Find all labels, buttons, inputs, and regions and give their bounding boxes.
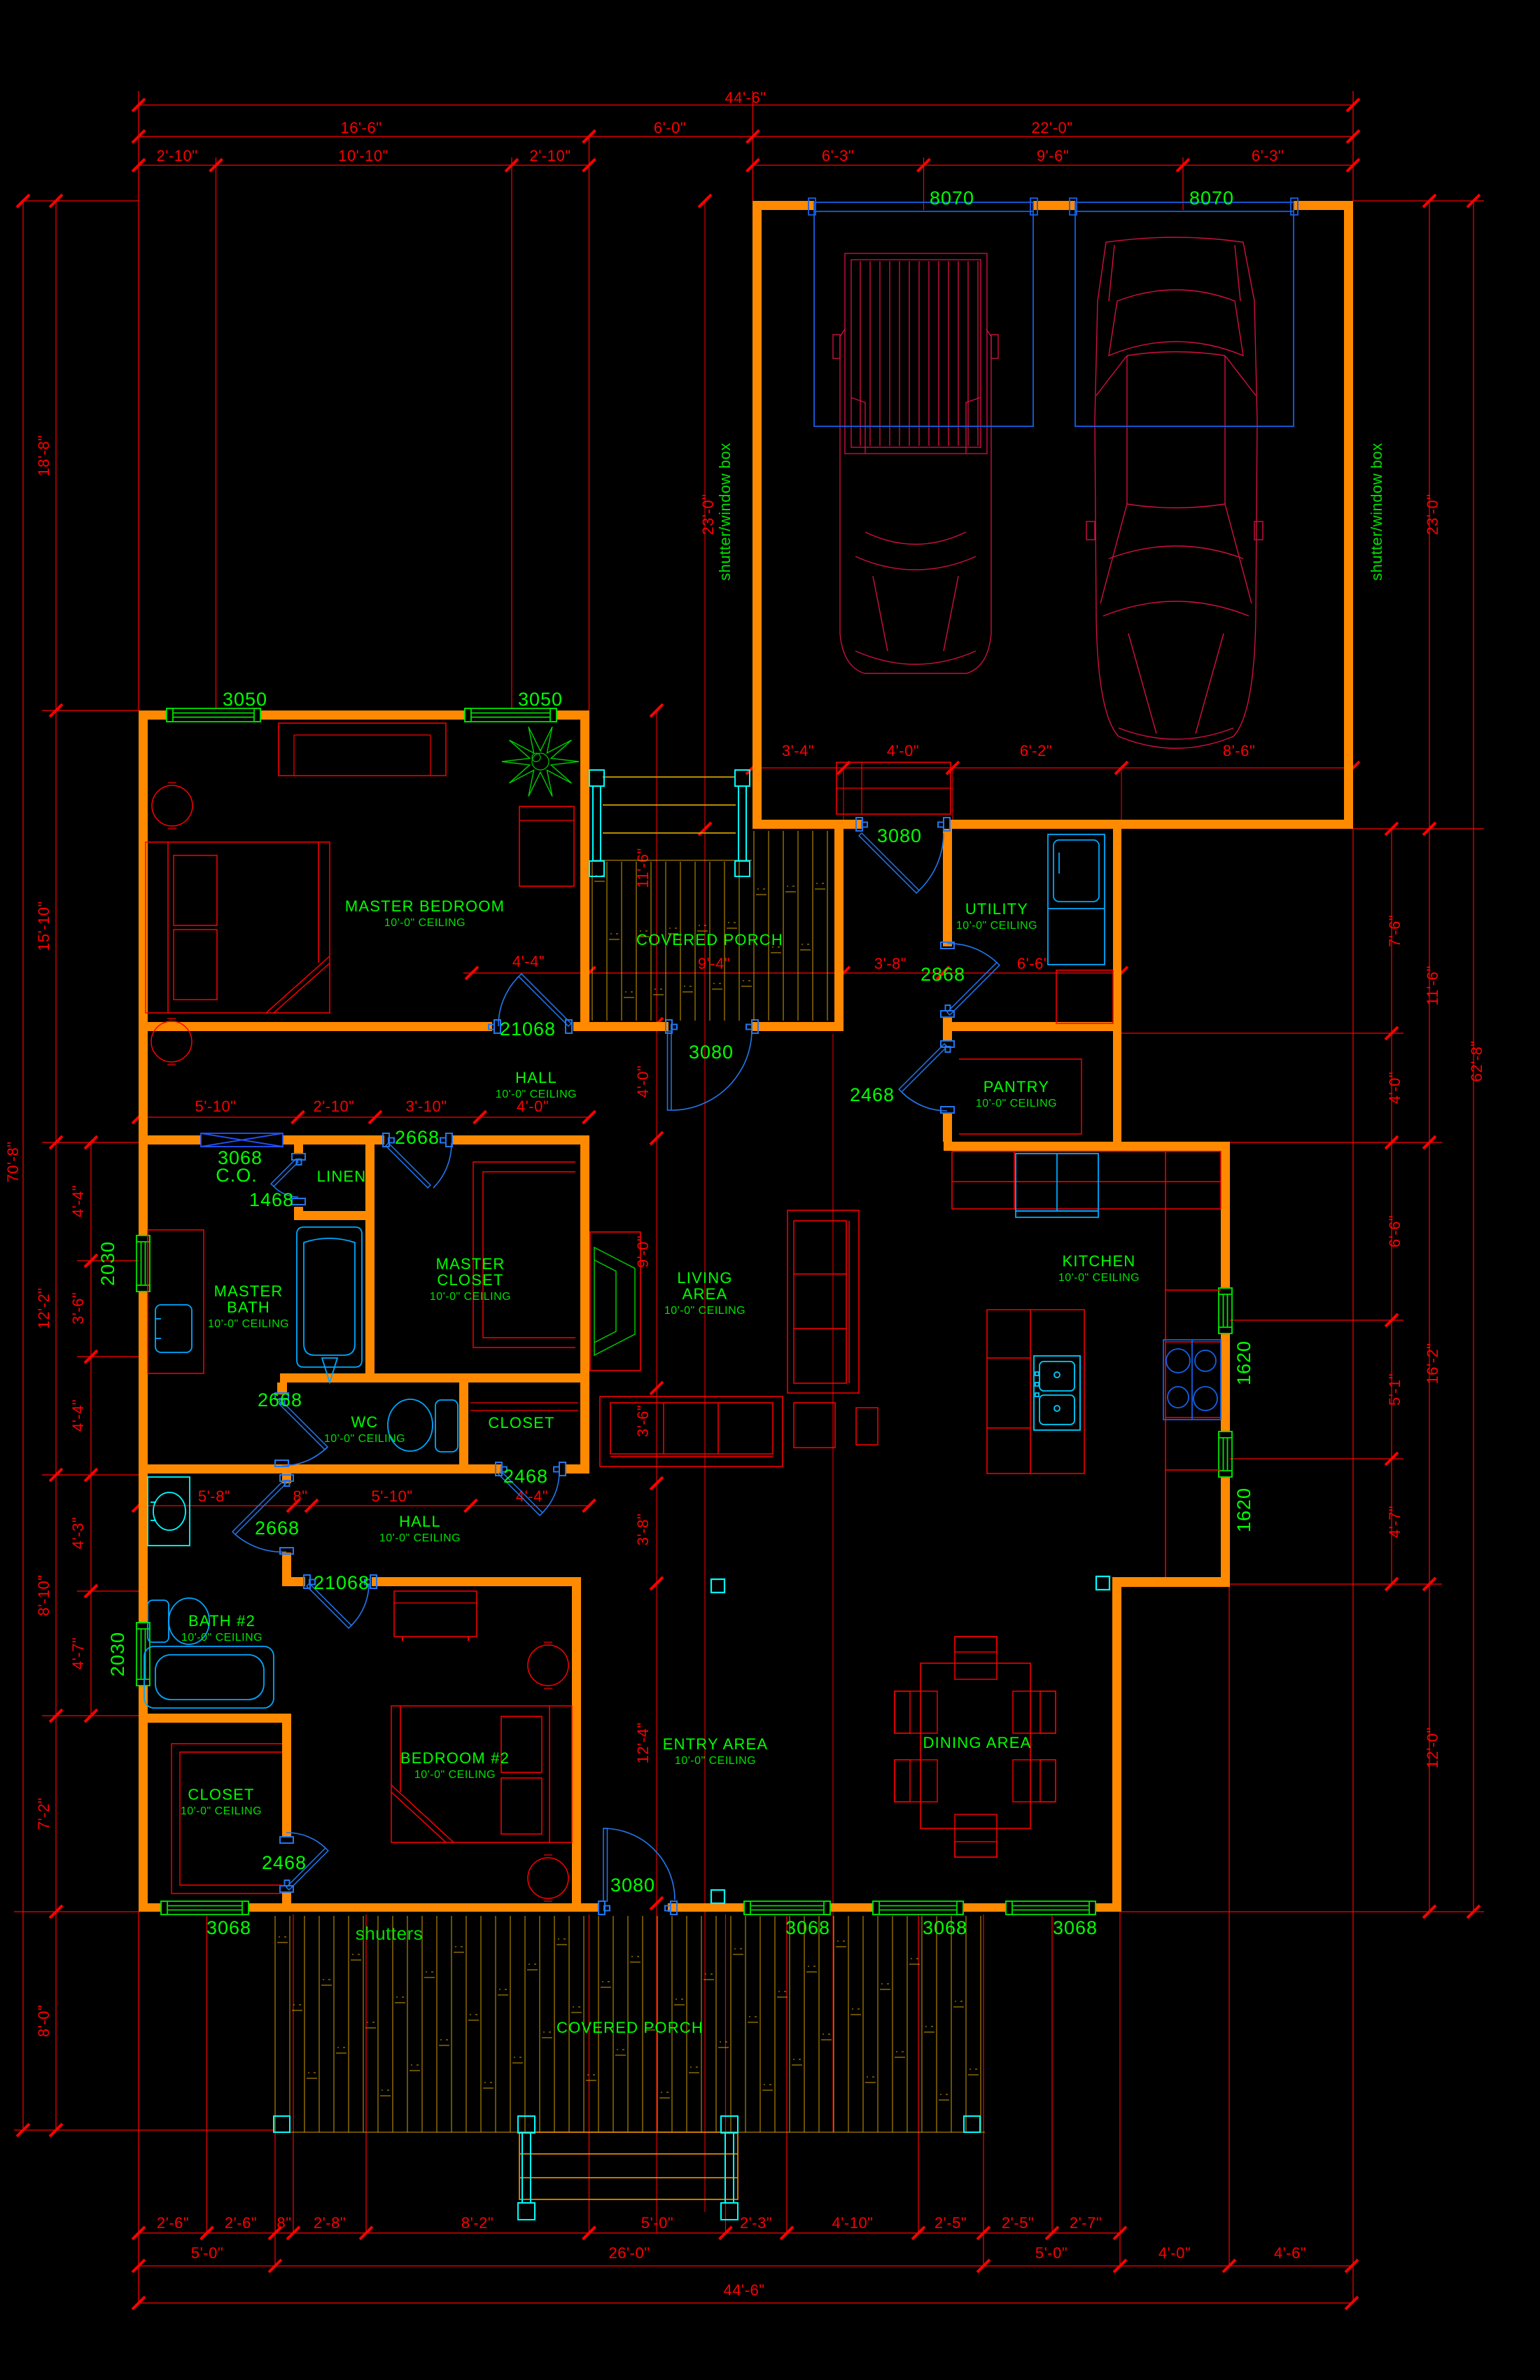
svg-text:5'-1": 5'-1"	[1386, 1373, 1403, 1406]
svg-text:70'-8": 70'-8"	[4, 1141, 22, 1182]
svg-text:4'-0": 4'-0"	[1158, 2244, 1191, 2262]
svg-text:8": 8"	[276, 2214, 291, 2232]
svg-text:23'-0": 23'-0"	[699, 493, 717, 535]
svg-text:16'-2": 16'-2"	[1424, 1343, 1441, 1384]
svg-text:2468: 2468	[850, 1084, 895, 1105]
svg-text:HALL: HALL	[399, 1513, 441, 1530]
svg-text:2'-5": 2'-5"	[934, 2214, 967, 2232]
svg-text:3'-4": 3'-4"	[782, 742, 814, 759]
svg-text:8'-6": 8'-6"	[1223, 742, 1255, 759]
svg-text:3'-10": 3'-10"	[405, 1098, 447, 1115]
svg-text:LIVING: LIVING	[677, 1269, 732, 1287]
svg-text:6'-3": 6'-3"	[1252, 147, 1284, 164]
svg-text:6'-2": 6'-2"	[1020, 742, 1052, 759]
svg-text:10'-0" CEILING: 10'-0" CEILING	[181, 1632, 262, 1644]
svg-text:10'-0" CEILING: 10'-0" CEILING	[976, 1098, 1057, 1109]
svg-text:21068: 21068	[500, 1018, 556, 1039]
svg-text:10'-0" CEILING: 10'-0" CEILING	[208, 1318, 289, 1330]
svg-text:2030: 2030	[107, 1632, 128, 1676]
svg-text:62'-8": 62'-8"	[1468, 1040, 1485, 1081]
svg-text:10'-0" CEILING: 10'-0" CEILING	[430, 1291, 511, 1303]
svg-text:MASTER BEDROOM: MASTER BEDROOM	[345, 897, 505, 915]
svg-text:2468: 2468	[262, 1852, 307, 1873]
svg-text:4'-0": 4'-0"	[887, 742, 919, 759]
svg-text:3068: 3068	[1053, 1917, 1098, 1938]
svg-text:3068: 3068	[785, 1917, 830, 1938]
svg-text:3'-8": 3'-8"	[874, 955, 906, 972]
svg-text:9'-6": 9'-6"	[1037, 147, 1069, 164]
svg-text:9'-0": 9'-0"	[634, 1235, 652, 1268]
svg-text:2'-10": 2'-10"	[529, 147, 570, 164]
svg-text:3'-6": 3'-6"	[69, 1292, 87, 1324]
svg-text:1620: 1620	[1233, 1487, 1254, 1532]
svg-text:8'-0": 8'-0"	[35, 2005, 52, 2037]
svg-text:LINEN: LINEN	[317, 1168, 367, 1185]
svg-text:8'-10": 8'-10"	[35, 1574, 52, 1616]
svg-text:2668: 2668	[395, 1127, 440, 1148]
svg-text:4'-10": 4'-10"	[832, 2214, 873, 2232]
svg-text:shutter/window box: shutter/window box	[1368, 442, 1385, 580]
svg-text:10'-0" CEILING: 10'-0" CEILING	[384, 917, 465, 929]
svg-text:4'-4": 4'-4"	[69, 1185, 87, 1217]
svg-text:5'-0": 5'-0"	[1035, 2244, 1067, 2262]
svg-text:5'-8": 5'-8"	[198, 1487, 230, 1505]
svg-text:2'-10": 2'-10"	[156, 147, 197, 164]
svg-text:AREA: AREA	[682, 1285, 728, 1303]
svg-text:2'-3": 2'-3"	[740, 2214, 772, 2232]
svg-text:CLOSET: CLOSET	[437, 1271, 503, 1289]
svg-text:10'-0" CEILING: 10'-0" CEILING	[956, 920, 1037, 932]
svg-text:10'-10": 10'-10"	[338, 147, 388, 164]
svg-text:7'-6": 7'-6"	[1386, 915, 1403, 947]
svg-text:4'-7": 4'-7"	[69, 1637, 87, 1669]
svg-text:8070: 8070	[1189, 188, 1234, 209]
svg-text:2868: 2868	[920, 964, 965, 985]
svg-text:3080: 3080	[877, 825, 922, 846]
svg-text:ENTRY AREA: ENTRY AREA	[663, 1735, 769, 1753]
svg-text:6'-6": 6'-6"	[1386, 1215, 1403, 1247]
svg-text:BATH: BATH	[227, 1298, 270, 1316]
svg-text:10'-0" CEILING: 10'-0" CEILING	[379, 1532, 461, 1544]
svg-text:7'-2": 7'-2"	[35, 1798, 52, 1830]
svg-text:3068: 3068	[923, 1917, 967, 1938]
svg-text:10'-0" CEILING: 10'-0" CEILING	[675, 1755, 756, 1767]
svg-text:23'-0": 23'-0"	[1424, 493, 1441, 535]
svg-text:shutters: shutters	[356, 1923, 423, 1944]
svg-text:DINING AREA: DINING AREA	[923, 1734, 1031, 1751]
svg-text:22'-0": 22'-0"	[1031, 119, 1072, 136]
svg-text:11'-6": 11'-6"	[1424, 965, 1441, 1005]
svg-text:3080: 3080	[689, 1042, 734, 1063]
svg-text:1468: 1468	[249, 1189, 294, 1210]
svg-text:WC: WC	[351, 1413, 378, 1431]
svg-text:16'-6": 16'-6"	[340, 119, 381, 136]
svg-text:5'-10": 5'-10"	[371, 1487, 412, 1505]
svg-text:5'-0": 5'-0"	[191, 2244, 223, 2262]
svg-text:5'-10": 5'-10"	[195, 1098, 236, 1115]
svg-text:COVERED PORCH: COVERED PORCH	[556, 2019, 703, 2036]
svg-text:2'-10": 2'-10"	[313, 1098, 354, 1115]
svg-text:44'-6": 44'-6"	[724, 89, 766, 106]
svg-text:COVERED PORCH: COVERED PORCH	[636, 931, 783, 948]
svg-text:2'-8": 2'-8"	[314, 2214, 346, 2232]
svg-text:12'-0": 12'-0"	[1424, 1727, 1441, 1768]
svg-text:4'-0": 4'-0"	[634, 1065, 652, 1098]
svg-text:10'-0" CEILING: 10'-0" CEILING	[324, 1433, 405, 1445]
svg-text:4'-4": 4'-4"	[512, 953, 545, 970]
svg-text:15'-10": 15'-10"	[35, 901, 52, 951]
svg-text:2468: 2468	[503, 1466, 548, 1487]
svg-text:PANTRY: PANTRY	[983, 1078, 1049, 1095]
svg-text:6'-0": 6'-0"	[654, 119, 686, 136]
svg-text:2668: 2668	[255, 1518, 300, 1539]
svg-text:2668: 2668	[258, 1389, 302, 1410]
svg-text:C.O.: C.O.	[216, 1165, 258, 1186]
svg-text:4'-6": 4'-6"	[1274, 2244, 1306, 2262]
svg-text:18'-8": 18'-8"	[35, 435, 52, 476]
svg-text:KITCHEN: KITCHEN	[1063, 1252, 1136, 1270]
svg-text:UTILITY: UTILITY	[965, 900, 1028, 918]
svg-text:2030: 2030	[97, 1241, 118, 1286]
svg-text:8'-2": 8'-2"	[461, 2214, 493, 2232]
svg-text:10'-0" CEILING: 10'-0" CEILING	[1058, 1272, 1140, 1284]
svg-text:2'-7": 2'-7"	[1070, 2214, 1102, 2232]
svg-text:HALL: HALL	[515, 1069, 557, 1086]
svg-text:3050: 3050	[223, 689, 267, 710]
svg-text:10'-0" CEILING: 10'-0" CEILING	[664, 1305, 745, 1317]
svg-text:4'-3": 4'-3"	[69, 1517, 87, 1549]
svg-text:3050: 3050	[518, 689, 563, 710]
svg-text:10'-0" CEILING: 10'-0" CEILING	[414, 1769, 496, 1781]
svg-text:4'-0": 4'-0"	[1386, 1072, 1403, 1104]
svg-text:21068: 21068	[314, 1572, 370, 1593]
svg-text:8": 8"	[293, 1487, 307, 1505]
svg-text:8070: 8070	[930, 188, 974, 209]
svg-text:2'-6": 2'-6"	[157, 2214, 189, 2232]
svg-text:2'-5": 2'-5"	[1002, 2214, 1034, 2232]
svg-text:44'-6": 44'-6"	[723, 2281, 764, 2299]
svg-text:BATH #2: BATH #2	[188, 1612, 255, 1630]
svg-text:3068: 3068	[206, 1917, 251, 1938]
svg-text:6'-3": 6'-3"	[822, 147, 854, 164]
svg-text:4'-7": 4'-7"	[1386, 1506, 1403, 1538]
svg-text:MASTER: MASTER	[214, 1282, 283, 1300]
svg-text:5'-0": 5'-0"	[641, 2214, 673, 2232]
svg-text:CLOSET: CLOSET	[488, 1414, 554, 1431]
svg-text:CLOSET: CLOSET	[188, 1786, 254, 1803]
svg-text:2'-6": 2'-6"	[225, 2214, 257, 2232]
svg-text:3'-8": 3'-8"	[634, 1513, 652, 1546]
svg-text:11'-6": 11'-6"	[634, 848, 652, 888]
svg-text:10'-0" CEILING: 10'-0" CEILING	[496, 1088, 577, 1100]
svg-text:12'-4": 12'-4"	[634, 1722, 652, 1763]
svg-text:12'-2": 12'-2"	[35, 1287, 52, 1329]
svg-text:6'-6": 6'-6"	[1017, 955, 1049, 972]
svg-text:MASTER: MASTER	[436, 1255, 505, 1273]
svg-text:26'-0": 26'-0"	[608, 2244, 650, 2262]
svg-text:4'-4": 4'-4"	[69, 1399, 87, 1431]
svg-text:3'-6": 3'-6"	[634, 1405, 652, 1437]
svg-text:BEDROOM #2: BEDROOM #2	[400, 1749, 510, 1767]
svg-text:shutter/window box: shutter/window box	[716, 442, 734, 580]
svg-text:9'-4": 9'-4"	[698, 955, 730, 972]
svg-text:1620: 1620	[1233, 1340, 1254, 1385]
svg-text:3080: 3080	[610, 1875, 655, 1896]
svg-text:10'-0" CEILING: 10'-0" CEILING	[181, 1805, 262, 1817]
